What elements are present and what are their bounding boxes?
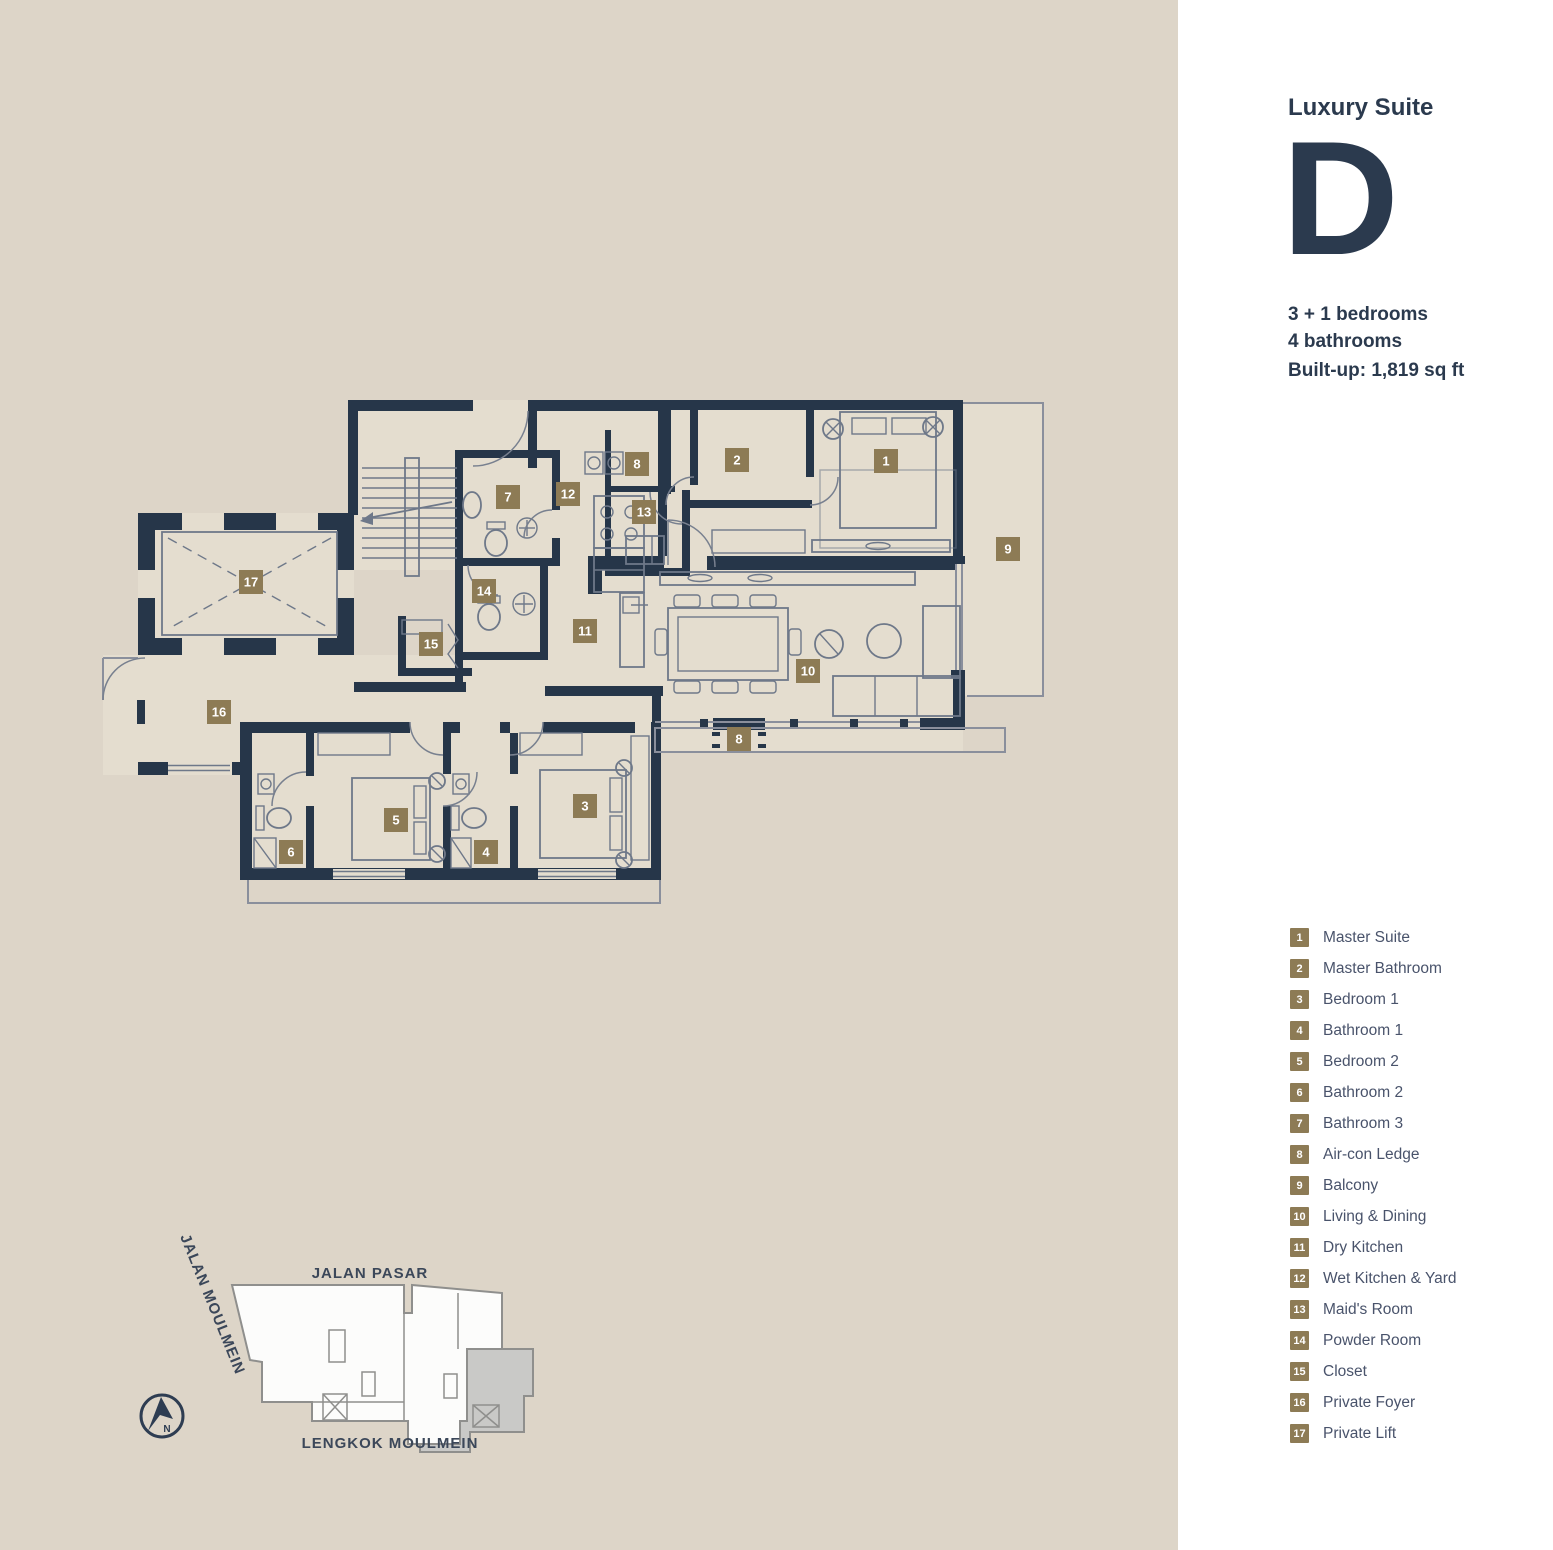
svg-text:13: 13	[637, 505, 651, 520]
svg-text:16: 16	[212, 705, 226, 720]
legend-item: 15Closet	[1290, 1362, 1457, 1381]
legend-label: Bathroom 1	[1323, 1022, 1403, 1040]
legend-item: 4Bathroom 1	[1290, 1021, 1457, 1040]
legend-badge: 11	[1290, 1238, 1309, 1257]
badge-wet-kitchen: 12	[556, 482, 580, 506]
builtup-spec: Built-up: 1,819 sq ft	[1288, 360, 1464, 382]
legend-item: 1Master Suite	[1290, 928, 1457, 947]
legend-item: 8Air-con Ledge	[1290, 1145, 1457, 1164]
legend-badge: 17	[1290, 1424, 1309, 1443]
legend-item: 14Powder Room	[1290, 1331, 1457, 1350]
svg-text:7: 7	[504, 490, 511, 505]
legend-item: 16Private Foyer	[1290, 1393, 1457, 1412]
svg-text:1: 1	[882, 454, 889, 469]
svg-text:3: 3	[581, 799, 588, 814]
bedrooms-spec: 3 + 1 bedrooms	[1288, 301, 1428, 328]
room-legend: 1Master Suite 2Master Bathroom 3Bedroom …	[1290, 928, 1457, 1443]
badge-powder-room: 14	[472, 579, 496, 603]
legend-badge: 5	[1290, 1052, 1309, 1071]
legend-label: Bedroom 1	[1323, 991, 1399, 1009]
legend-badge: 12	[1290, 1269, 1309, 1288]
legend-item: 13Maid's Room	[1290, 1300, 1457, 1319]
badge-master-suite: 1	[874, 449, 898, 473]
legend-badge: 16	[1290, 1393, 1309, 1412]
legend-badge: 1	[1290, 928, 1309, 947]
legend-badge: 4	[1290, 1021, 1309, 1040]
legend-label: Master Suite	[1323, 929, 1410, 947]
legend-label: Private Lift	[1323, 1425, 1396, 1443]
legend-item: 2Master Bathroom	[1290, 959, 1457, 978]
legend-badge: 13	[1290, 1300, 1309, 1319]
badge-bathroom-3: 7	[496, 485, 520, 509]
legend-badge: 7	[1290, 1114, 1309, 1133]
legend-label: Maid's Room	[1323, 1301, 1413, 1319]
site-plan: JALAN PASAR LENGKOK MOULMEIN JALAN MOULM…	[141, 1232, 533, 1452]
legend-item: 5Bedroom 2	[1290, 1052, 1457, 1071]
legend-item: 7Bathroom 3	[1290, 1114, 1457, 1133]
floorplan-drawing: 1 2 3 4 5 6 7 8 8 9 10 11 12 13 14 15 16…	[0, 0, 1178, 1550]
legend-label: Living & Dining	[1323, 1208, 1426, 1226]
badge-bathroom-1: 4	[474, 840, 498, 864]
svg-text:17: 17	[244, 575, 258, 590]
legend-item: 12Wet Kitchen & Yard	[1290, 1269, 1457, 1288]
legend-item: 17Private Lift	[1290, 1424, 1457, 1443]
svg-text:9: 9	[1004, 542, 1011, 557]
street-top-label: JALAN PASAR	[312, 1265, 429, 1282]
svg-text:8: 8	[633, 457, 640, 472]
legend-item: 3Bedroom 1	[1290, 990, 1457, 1009]
legend-badge: 2	[1290, 959, 1309, 978]
legend-label: Closet	[1323, 1363, 1367, 1381]
legend-badge: 3	[1290, 990, 1309, 1009]
plan-panel: 1 2 3 4 5 6 7 8 8 9 10 11 12 13 14 15 16…	[0, 0, 1178, 1550]
legend-label: Balcony	[1323, 1177, 1378, 1195]
badge-closet: 15	[419, 632, 443, 656]
badge-balcony: 9	[996, 537, 1020, 561]
badge-private-lift: 17	[239, 570, 263, 594]
unit-letter: D	[1282, 118, 1399, 280]
legend-label: Bathroom 3	[1323, 1115, 1403, 1133]
legend-item: 6Bathroom 2	[1290, 1083, 1457, 1102]
svg-text:12: 12	[561, 487, 575, 502]
legend-badge: 10	[1290, 1207, 1309, 1226]
legend-label: Master Bathroom	[1323, 960, 1442, 978]
street-bottom-label: LENGKOK MOULMEIN	[302, 1435, 479, 1452]
legend-item: 10Living & Dining	[1290, 1207, 1457, 1226]
north-compass-icon: N	[141, 1395, 183, 1437]
legend-label: Dry Kitchen	[1323, 1239, 1403, 1257]
badge-private-foyer: 16	[207, 700, 231, 724]
legend-label: Wet Kitchen & Yard	[1323, 1270, 1457, 1288]
floorplan-page: 1 2 3 4 5 6 7 8 8 9 10 11 12 13 14 15 16…	[0, 0, 1553, 1550]
badge-bedroom-2: 5	[384, 808, 408, 832]
legend-item: 9Balcony	[1290, 1176, 1457, 1195]
legend-label: Bathroom 2	[1323, 1084, 1403, 1102]
svg-text:8: 8	[735, 732, 742, 747]
badge-aircon-ledge-bottom: 8	[727, 727, 751, 751]
legend-label: Air-con Ledge	[1323, 1146, 1420, 1164]
badge-master-bathroom: 2	[725, 448, 749, 472]
badge-bathroom-2: 6	[279, 840, 303, 864]
legend-label: Private Foyer	[1323, 1394, 1415, 1412]
legend-label: Bedroom 2	[1323, 1053, 1399, 1071]
svg-text:15: 15	[424, 637, 438, 652]
legend-badge: 14	[1290, 1331, 1309, 1350]
badge-bedroom-1: 3	[573, 794, 597, 818]
bathrooms-spec: 4 bathrooms	[1288, 328, 1428, 355]
svg-text:6: 6	[287, 845, 294, 860]
svg-text:14: 14	[477, 584, 492, 599]
svg-text:5: 5	[392, 813, 399, 828]
svg-text:11: 11	[578, 624, 592, 639]
svg-text:10: 10	[801, 664, 815, 679]
svg-text:4: 4	[482, 845, 490, 860]
badge-aircon-ledge-top: 8	[625, 452, 649, 476]
unit-specs: 3 + 1 bedrooms 4 bathrooms	[1288, 301, 1428, 355]
info-panel: Luxury Suite D 3 + 1 bedrooms 4 bathroom…	[1178, 0, 1553, 1550]
legend-badge: 9	[1290, 1176, 1309, 1195]
svg-text:2: 2	[733, 453, 740, 468]
legend-item: 11Dry Kitchen	[1290, 1238, 1457, 1257]
legend-badge: 15	[1290, 1362, 1309, 1381]
legend-badge: 6	[1290, 1083, 1309, 1102]
svg-text:N: N	[163, 1424, 170, 1435]
legend-label: Powder Room	[1323, 1332, 1421, 1350]
badge-dry-kitchen: 11	[573, 619, 597, 643]
badge-maids-room: 13	[632, 500, 656, 524]
legend-badge: 8	[1290, 1145, 1309, 1164]
badge-living-dining: 10	[796, 659, 820, 683]
